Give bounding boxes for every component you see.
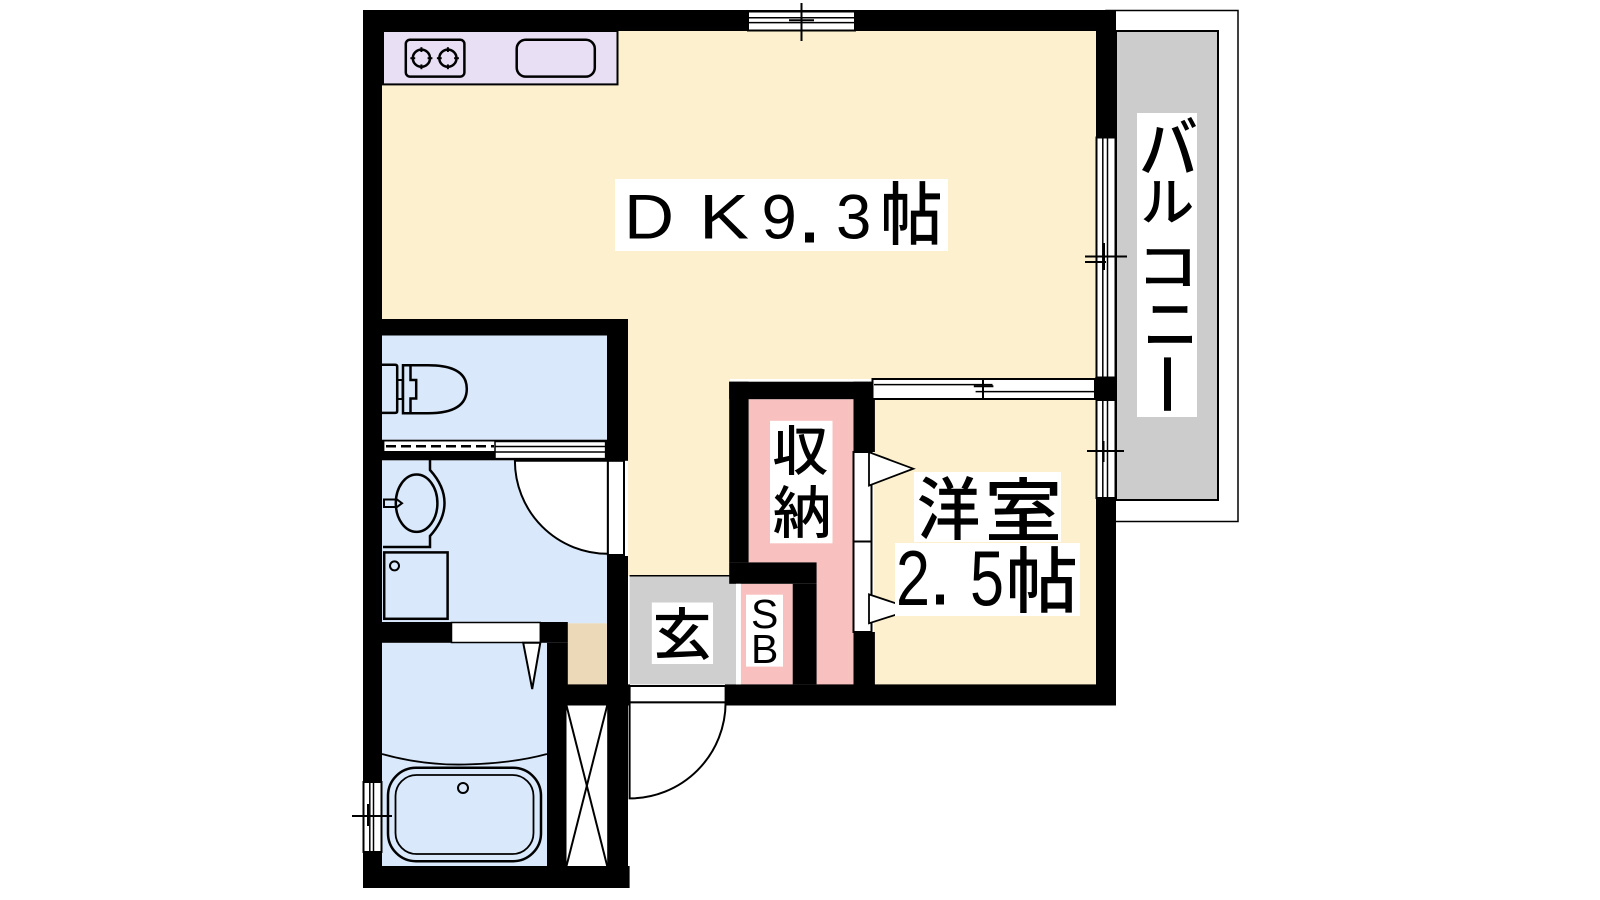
svg-text:3: 3: [836, 183, 871, 253]
svg-text:K: K: [699, 183, 749, 253]
svg-text:B: B: [751, 626, 778, 672]
svg-text:5: 5: [970, 534, 1004, 622]
svg-text:D: D: [624, 183, 674, 253]
svg-text:2: 2: [896, 534, 930, 622]
svg-text:9: 9: [762, 183, 797, 253]
